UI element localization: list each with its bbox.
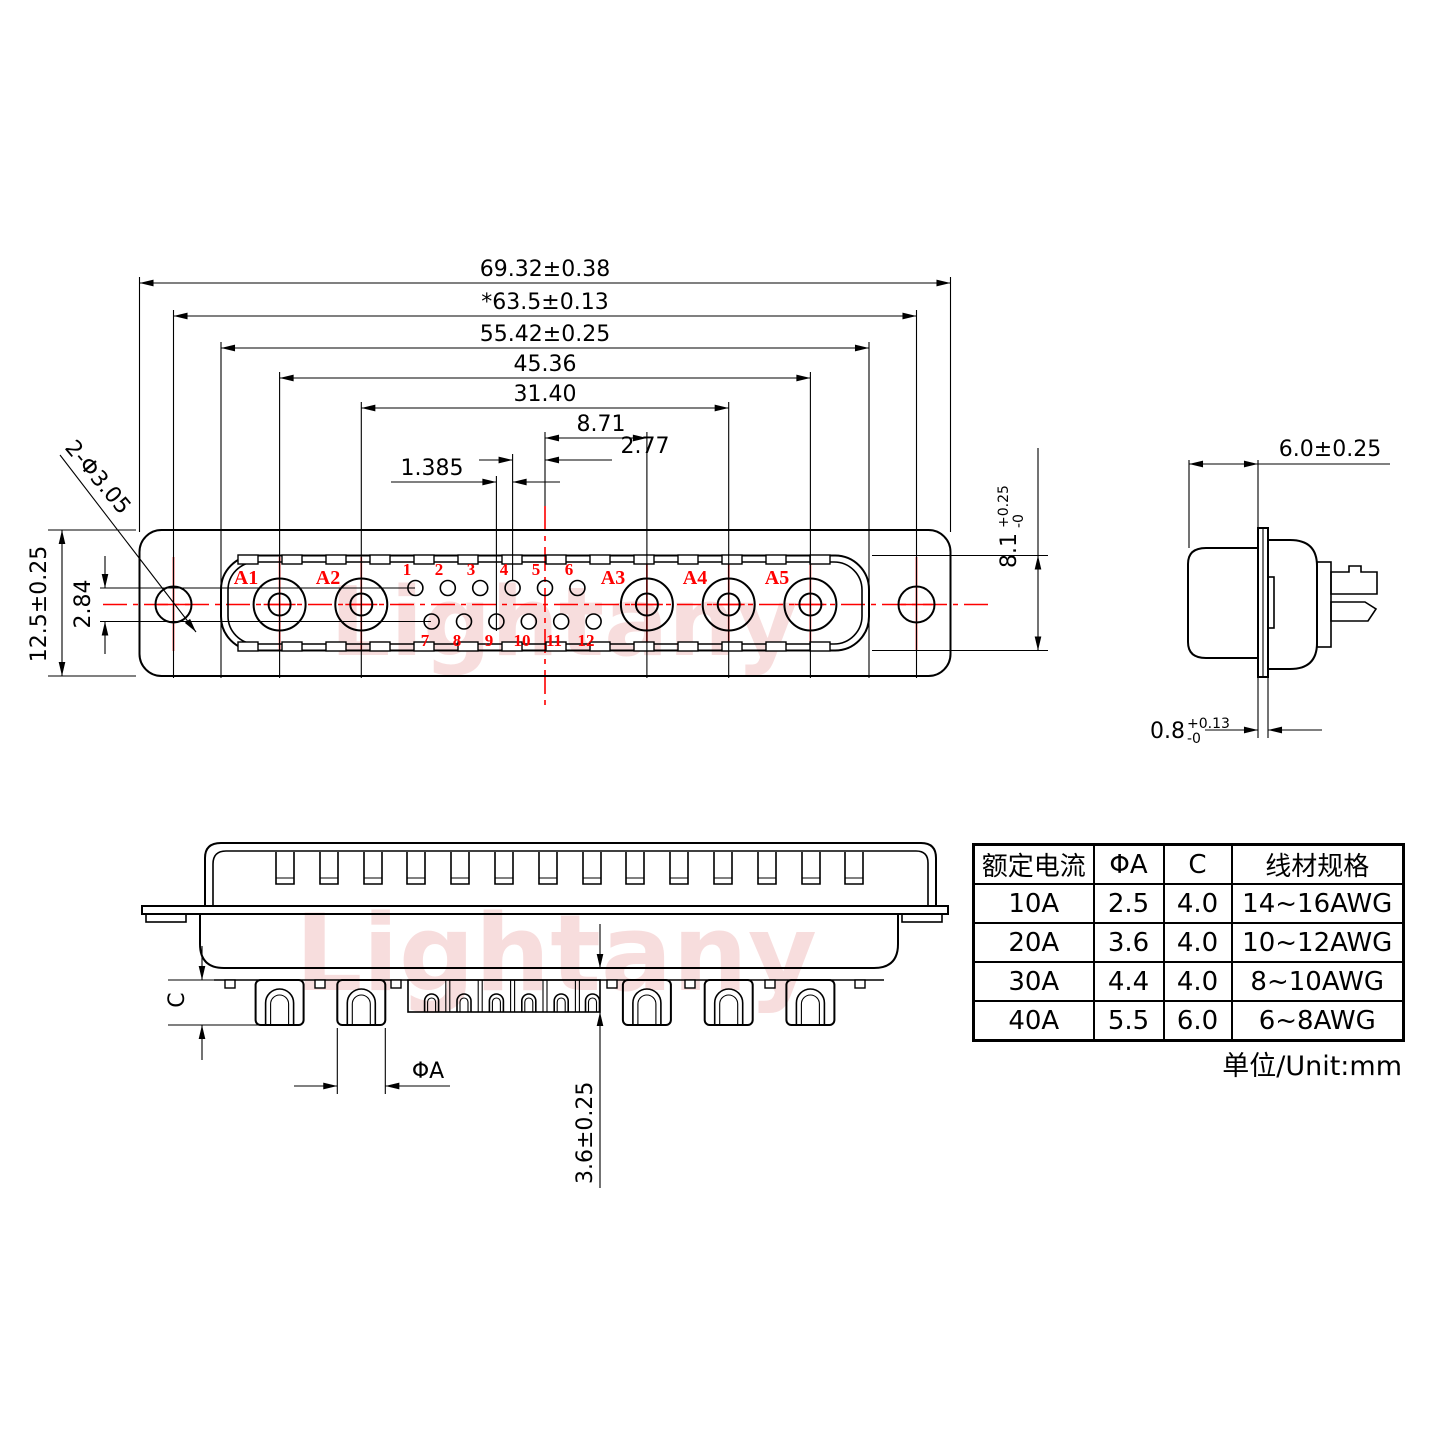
pin-label-5: 5 [532, 560, 541, 579]
pin-label-12: 12 [578, 631, 595, 650]
dim-pin-diameter-label: ΦA [412, 1059, 444, 1084]
cell: 14~16AWG [1232, 884, 1404, 923]
spec-table: 额定电流 ΦA C 线材规格 10A 2.5 4.0 14~16AWG 20A … [972, 843, 1405, 1042]
dim-flange-thickness-label: 0.8 +0.13 -0 [1150, 716, 1230, 747]
svg-text:+0.13: +0.13 [1187, 716, 1230, 732]
pin-label-4: 4 [500, 560, 509, 579]
svg-text:-0: -0 [1011, 514, 1027, 528]
wire-slots [276, 852, 863, 884]
pin-label-10: 10 [514, 631, 531, 650]
side-rear-insulator [1317, 562, 1331, 647]
cell: 5.5 [1094, 1001, 1164, 1041]
cell: 4.0 [1164, 923, 1232, 962]
svg-text:+0.25: +0.25 [996, 485, 1012, 528]
side-terminal-upper [1331, 566, 1377, 594]
cell: 3.6 [1094, 923, 1164, 962]
pin-label-7: 7 [421, 631, 430, 650]
watermark-text-face: Lightany [330, 568, 798, 678]
dim-center-a3-label: 8.71 [577, 412, 626, 437]
dim-shell-width-label: 55.42±0.25 [480, 322, 610, 347]
table-row: 20A 3.6 4.0 10~12AWG [974, 923, 1404, 962]
dim-row-offset-label: 2.84 [71, 580, 96, 629]
col-header-wire-spec: 线材规格 [1232, 845, 1404, 885]
dim-pin-pitch-label: 2.77 [621, 434, 670, 459]
dim-half-pitch-label: 1.385 [401, 456, 464, 481]
cell: 30A [974, 962, 1094, 1001]
contact-label-a1: A1 [234, 567, 258, 589]
side-view: 6.0±0.25 0.8 +0.13 -0 [1150, 437, 1390, 747]
cell: 8~10AWG [1232, 962, 1404, 1001]
dim-mount-hole-span-label: *63.5±0.13 [481, 290, 608, 315]
cell: 6.0 [1164, 1001, 1232, 1041]
pin-label-11: 11 [546, 631, 562, 650]
contact-label-a2: A2 [316, 567, 340, 589]
drawing-canvas: Lightany Lightany [0, 0, 1440, 1440]
table-row: 30A 4.4 4.0 8~10AWG [974, 962, 1404, 1001]
pin-label-8: 8 [453, 631, 462, 650]
side-terminal-lower [1331, 602, 1376, 621]
dim-pin-protrusion-label: 3.6±0.25 [573, 1082, 598, 1184]
table-row: 40A 5.5 6.0 6~8AWG [974, 1001, 1404, 1041]
dim-flange-height-label: 12.5±0.25 [27, 546, 52, 662]
pin-label-3: 3 [467, 560, 476, 579]
table-row: 10A 2.5 4.0 14~16AWG [974, 884, 1404, 923]
cell: 4.0 [1164, 884, 1232, 923]
cell: 20A [974, 923, 1094, 962]
flange-tab-left [146, 914, 186, 922]
dim-a2-a4-span-label: 31.40 [514, 382, 577, 407]
dim-solder-cup-length-label: C [165, 992, 190, 1007]
contact-label-a3: A3 [601, 567, 625, 589]
pin-label-2: 2 [435, 560, 444, 579]
col-header-c: C [1164, 845, 1232, 885]
svg-text:-0: -0 [1187, 731, 1201, 747]
contact-label-a5: A5 [765, 567, 789, 589]
mount-hole-note-label: 2-Φ3.05 [59, 436, 135, 520]
side-rear-housing [1268, 540, 1317, 669]
contact-label-a4: A4 [683, 567, 707, 589]
pin-label-6: 6 [565, 560, 574, 579]
col-header-rated-current: 额定电流 [974, 845, 1094, 885]
spec-table-header-row: 额定电流 ΦA C 线材规格 [974, 845, 1404, 885]
pin-label-9: 9 [485, 631, 494, 650]
cell: 2.5 [1094, 884, 1164, 923]
cell: 6~8AWG [1232, 1001, 1404, 1041]
flange-tab-right [902, 914, 942, 922]
cell: 10~12AWG [1232, 923, 1404, 962]
svg-text:8.1: 8.1 [997, 533, 1022, 568]
cad-drawing: Lightany Lightany [0, 0, 1440, 1440]
side-shroud [1188, 548, 1258, 658]
pin-label-1: 1 [403, 560, 412, 579]
unit-note: 单位/Unit:mm [1100, 1044, 1402, 1083]
cell: 10A [974, 884, 1094, 923]
cell: 4.0 [1164, 962, 1232, 1001]
col-header-phi-a: ΦA [1094, 845, 1164, 885]
svg-text:0.8: 0.8 [1150, 719, 1185, 744]
dim-total-width-label: 69.32±0.38 [480, 257, 610, 282]
cell: 40A [974, 1001, 1094, 1041]
cell: 4.4 [1094, 962, 1164, 1001]
dim-a1-a5-span-label: 45.36 [514, 352, 577, 377]
dim-shell-depth-label: 6.0±0.25 [1279, 437, 1381, 462]
side-extension-lines [1189, 460, 1390, 738]
side-dimension-lines [1189, 464, 1322, 730]
